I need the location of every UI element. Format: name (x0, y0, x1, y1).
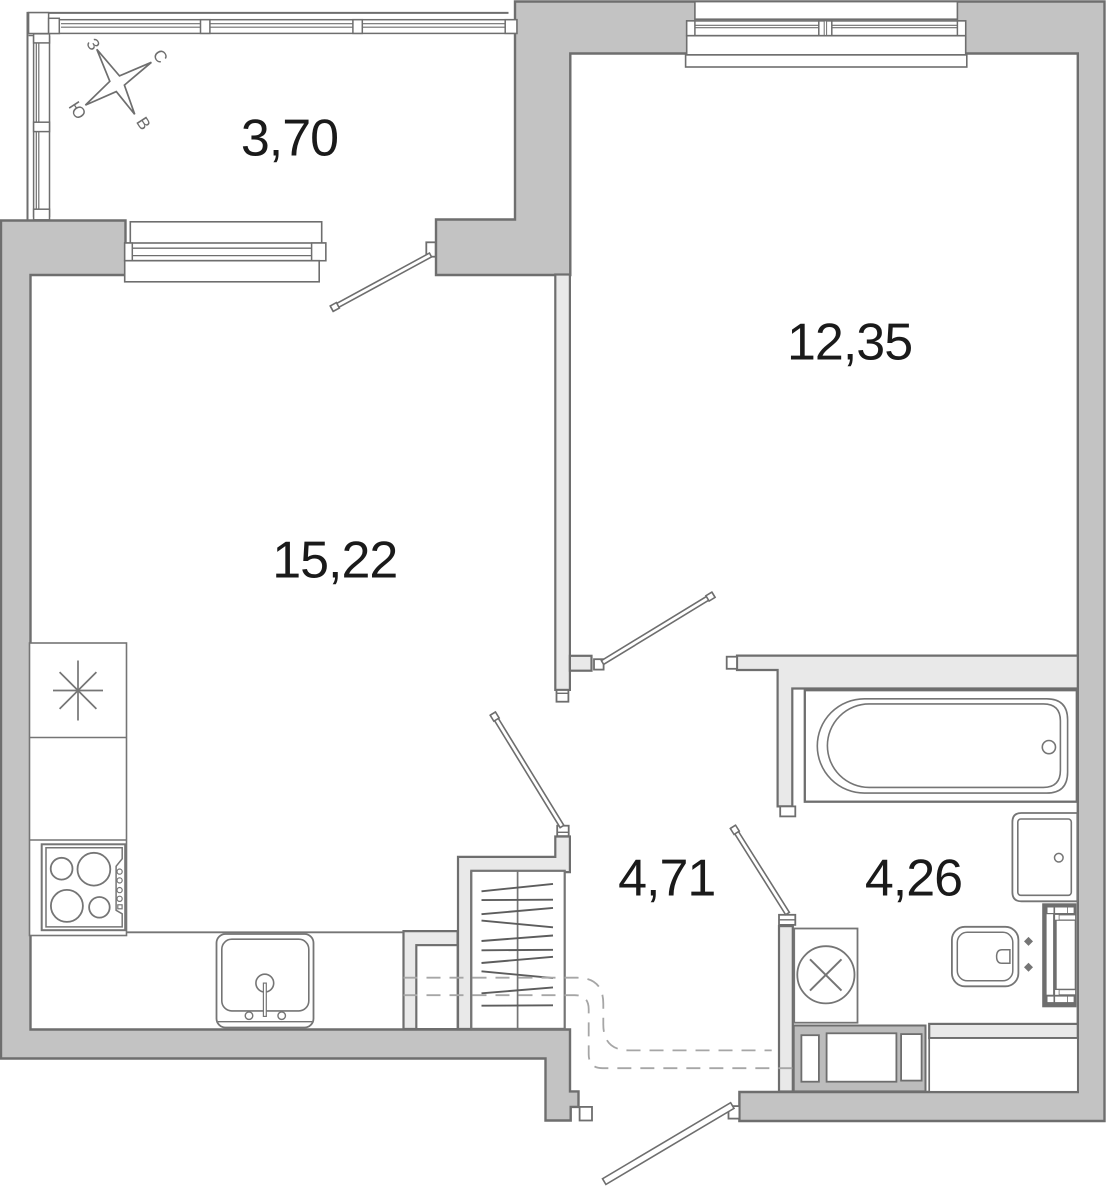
svg-text:З: З (82, 35, 104, 54)
svg-text:15,22: 15,22 (272, 532, 397, 590)
svg-text:Ю: Ю (65, 98, 90, 123)
svg-text:12,35: 12,35 (787, 314, 912, 372)
svg-text:С: С (149, 46, 172, 67)
svg-text:В: В (132, 114, 154, 134)
svg-text:3,70: 3,70 (241, 110, 338, 168)
svg-text:4,71: 4,71 (618, 850, 715, 908)
svg-text:4,26: 4,26 (865, 850, 962, 908)
